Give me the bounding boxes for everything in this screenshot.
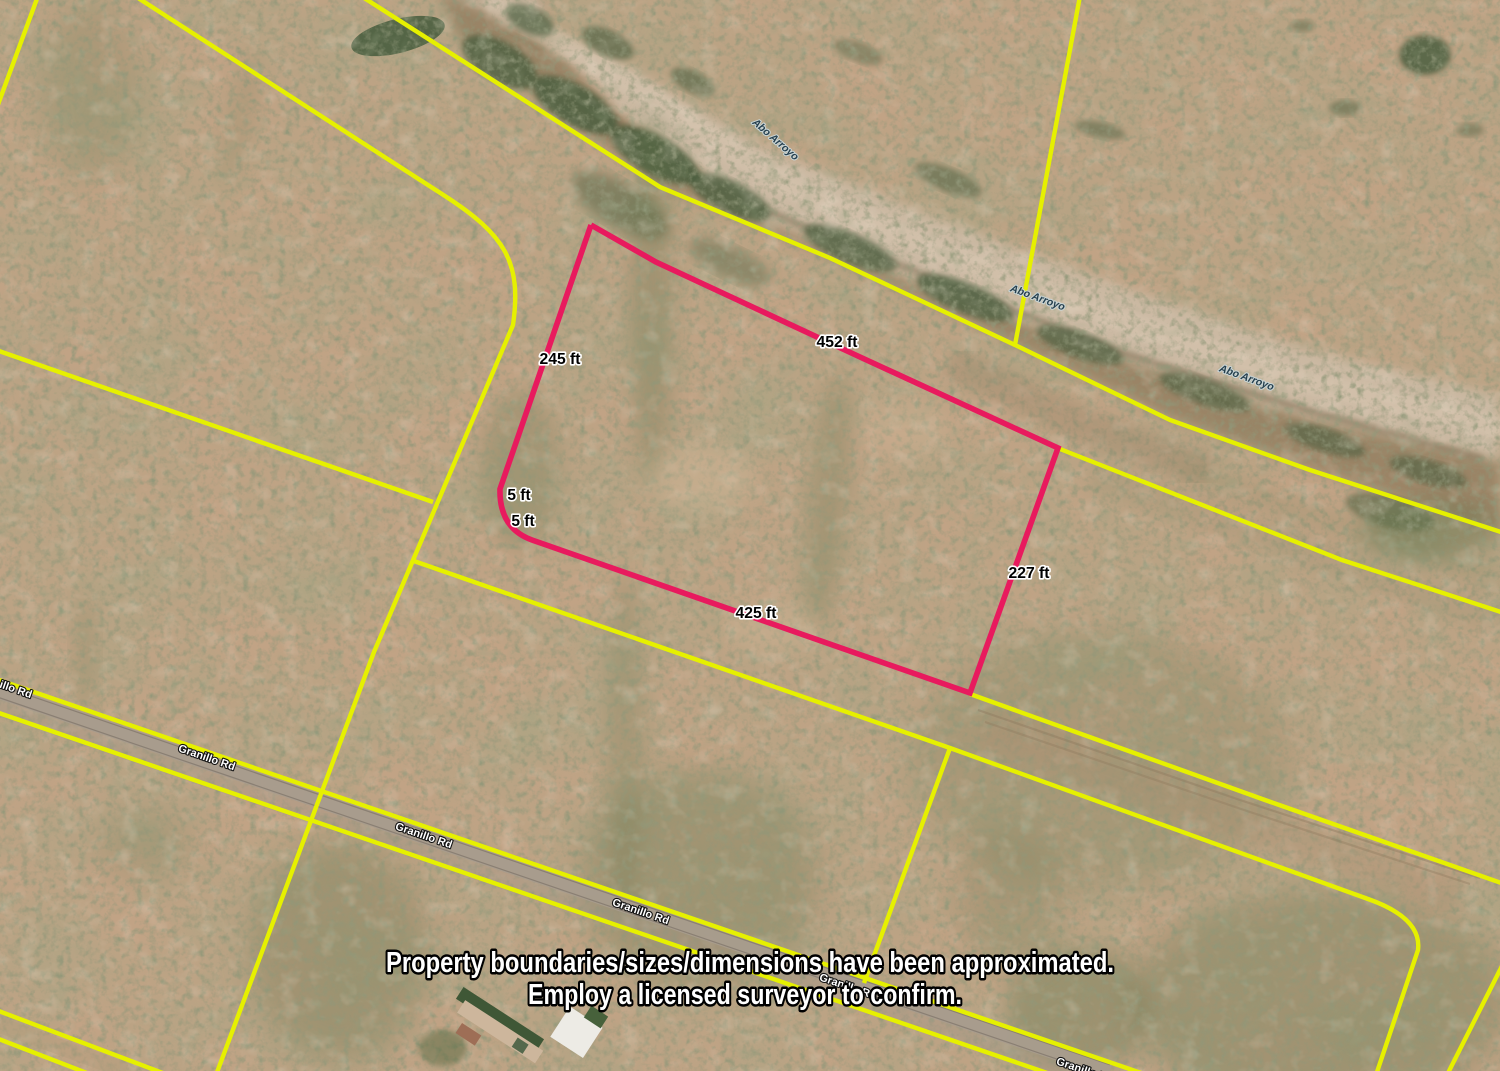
svg-text:Property boundaries/sizes/dime: Property boundaries/sizes/dimensions hav… <box>386 947 1114 979</box>
svg-text:5 ft: 5 ft <box>507 487 530 504</box>
svg-text:425 ft: 425 ft <box>736 605 777 622</box>
svg-text:452 ft: 452 ft <box>817 334 858 351</box>
svg-text:5 ft: 5 ft <box>511 513 534 530</box>
svg-text:245 ft: 245 ft <box>540 351 581 368</box>
svg-text:227 ft: 227 ft <box>1009 565 1050 582</box>
svg-text:Employ a licensed surveyor to: Employ a licensed surveyor to confirm. <box>528 979 962 1011</box>
